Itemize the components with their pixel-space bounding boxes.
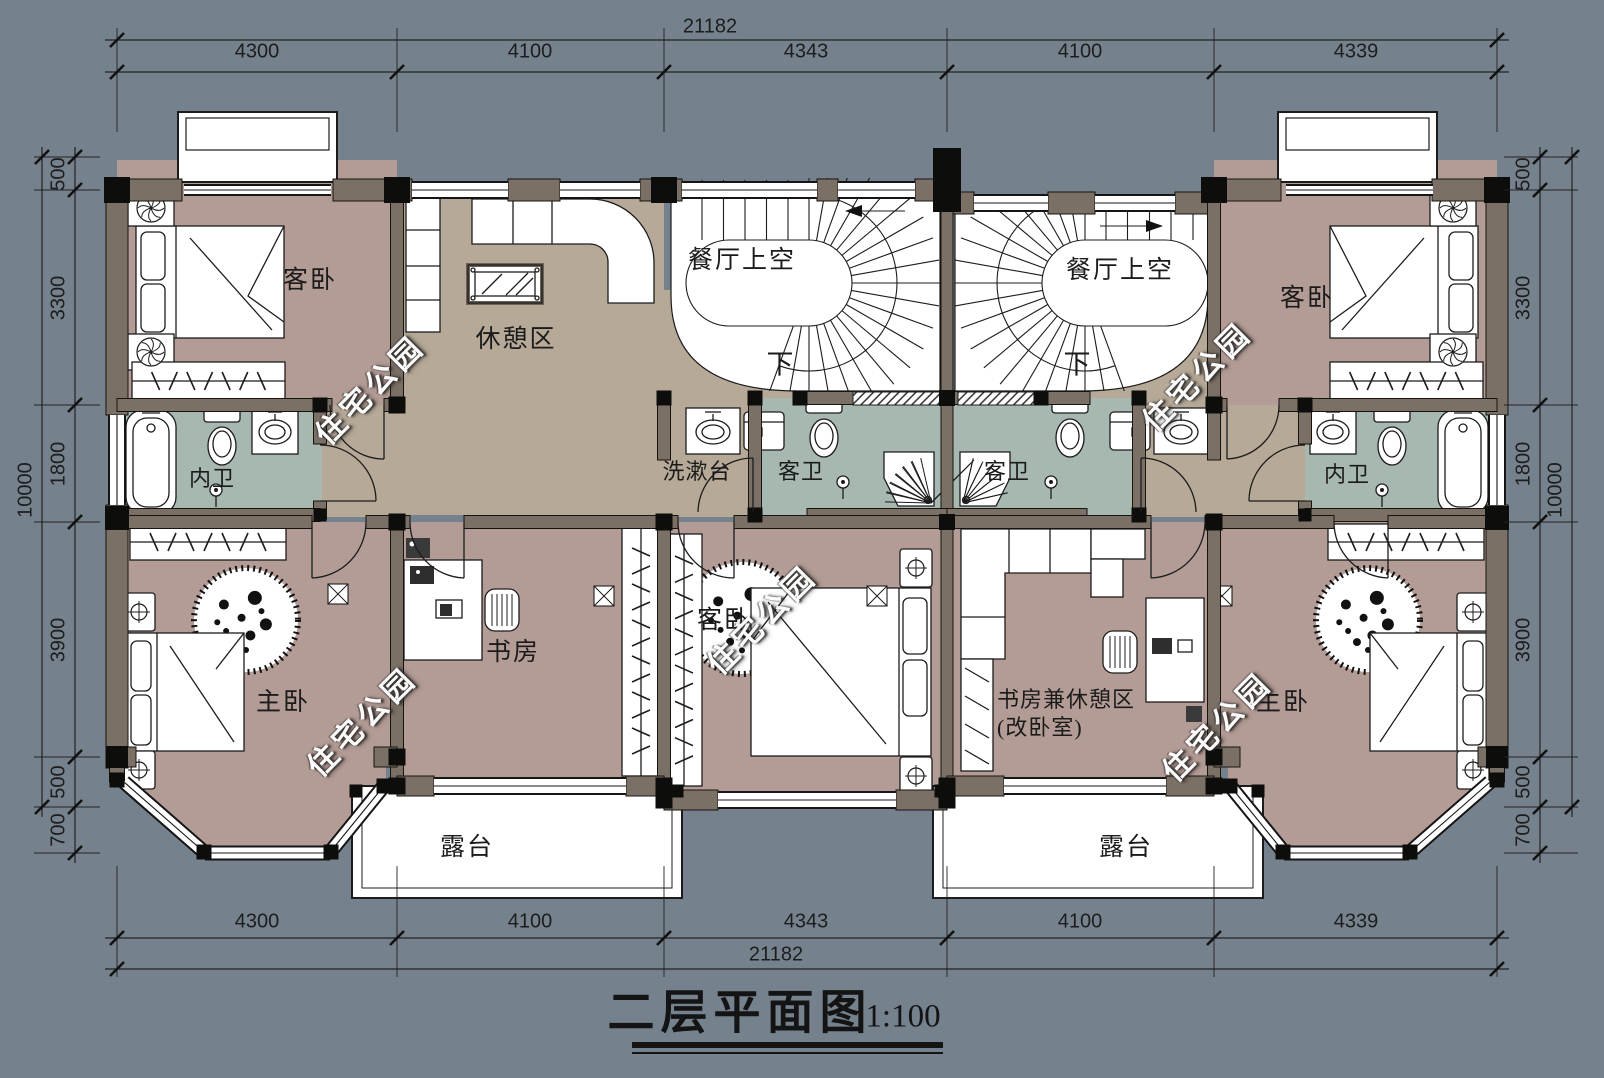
room-label-master-left: 主卧	[256, 682, 310, 718]
dim-top-seg-3: 4343	[784, 41, 829, 64]
room-label-washstand: 洗漱台	[662, 454, 731, 486]
dim-right-seg-6: 700	[1513, 813, 1536, 846]
cabinet	[406, 198, 440, 332]
label-stair-down-right: 下	[1064, 343, 1093, 382]
washstand-sink	[686, 408, 740, 454]
printer	[406, 538, 430, 558]
bed	[136, 226, 284, 338]
bay-window-bedroom-tr	[1278, 112, 1437, 182]
bed	[126, 633, 244, 751]
bookshelf	[961, 659, 993, 771]
room-label-study-lounge: 书房兼休憩区 (改卧室)	[997, 686, 1135, 742]
room-label-study: 书房	[486, 632, 540, 668]
page-title-scale: 1:100	[865, 999, 940, 1036]
room-label-dining-void-right: 餐厅上空	[1066, 250, 1174, 286]
dim-bottom-seg-2: 4100	[508, 911, 553, 934]
dim-left-seg-5: 500	[48, 765, 71, 798]
room-label-dining-void-left: 餐厅上空	[688, 240, 796, 276]
dim-left-total: 10000	[15, 462, 38, 518]
floor-marker	[594, 586, 614, 606]
dim-top-seg-4: 4100	[1058, 41, 1103, 64]
label-stair-down-left: 下	[767, 343, 796, 382]
bed	[1330, 226, 1478, 338]
dim-top-seg-5: 4339	[1334, 41, 1379, 64]
sink	[1310, 406, 1356, 454]
plant-symbol	[137, 338, 165, 366]
floor-marker	[328, 584, 348, 604]
nightstand	[1457, 593, 1489, 631]
dim-left-seg-2: 3300	[48, 276, 71, 321]
dim-right-seg-3: 1800	[1513, 442, 1536, 487]
plant-symbol	[1439, 338, 1467, 366]
nightstand	[900, 757, 932, 795]
desk-chair	[485, 589, 519, 631]
bathtub	[126, 410, 176, 514]
room-label-guest-bath-left: 客卫	[778, 454, 824, 486]
dim-bottom-seg-3: 4343	[784, 911, 829, 934]
dim-bottom-seg-5: 4339	[1334, 911, 1379, 934]
title-underline-thick	[632, 1042, 943, 1048]
room-label-guest-bedroom-tr: 客卧	[1280, 278, 1334, 314]
bay-window-bedroom-tl	[178, 112, 337, 182]
bed	[1370, 633, 1488, 751]
dim-right-seg-2: 3300	[1513, 276, 1536, 321]
room-label-terrace-left: 露台	[440, 827, 494, 863]
bathtub	[1438, 410, 1488, 514]
sink	[252, 406, 298, 454]
dim-right-seg-5: 500	[1513, 765, 1536, 798]
room-label-ensuite-right: 内卫	[1324, 457, 1370, 489]
dim-right-seg-4: 3900	[1513, 618, 1536, 663]
room-label-guest-bedroom-tl: 客卧	[283, 260, 337, 296]
dim-bottom-seg-1: 4300	[235, 911, 280, 934]
dim-right-seg-1: 500	[1513, 157, 1536, 190]
dim-left-seg-4: 3900	[48, 618, 71, 663]
title-underline-thin	[632, 1052, 943, 1054]
dim-left-seg-6: 700	[48, 813, 71, 846]
room-label-ensuite-left: 内卫	[189, 461, 235, 493]
dim-left-seg-1: 500	[48, 157, 71, 190]
room-label-terrace-right: 露台	[1099, 827, 1153, 863]
room-label-study-lounge-line2: (改卧室)	[997, 714, 1135, 742]
desk	[404, 560, 482, 660]
nightstand	[900, 549, 932, 587]
dim-right-total: 10000	[1545, 462, 1568, 518]
dim-top-seg-2: 4100	[508, 41, 553, 64]
dim-bottom-total: 21182	[749, 944, 803, 967]
dim-top-seg-1: 4300	[235, 41, 280, 64]
room-label-lounge: 休憩区	[475, 319, 556, 355]
coffee-table	[468, 265, 542, 303]
room-label-guest-bath-right: 客卫	[984, 454, 1030, 486]
wardrobe	[666, 534, 702, 786]
room-label-study-lounge-line1: 书房兼休憩区	[997, 686, 1135, 714]
dim-bottom-seg-4: 4100	[1058, 911, 1103, 934]
page-title: 二层平面图	[608, 974, 873, 1043]
dim-left-seg-3: 1800	[48, 442, 71, 487]
terrace-left-area	[352, 786, 682, 898]
floor-marker	[867, 586, 887, 606]
desk-chair	[1103, 631, 1137, 673]
wardrobe	[622, 526, 660, 776]
dim-top-total: 21182	[683, 16, 737, 39]
floor-plan-canvas: 客卧 休憩区 餐厅上空 下 洗漱台 客卫 内卫 主卧 书房 客卧 露台 餐厅上空…	[0, 0, 1604, 1078]
